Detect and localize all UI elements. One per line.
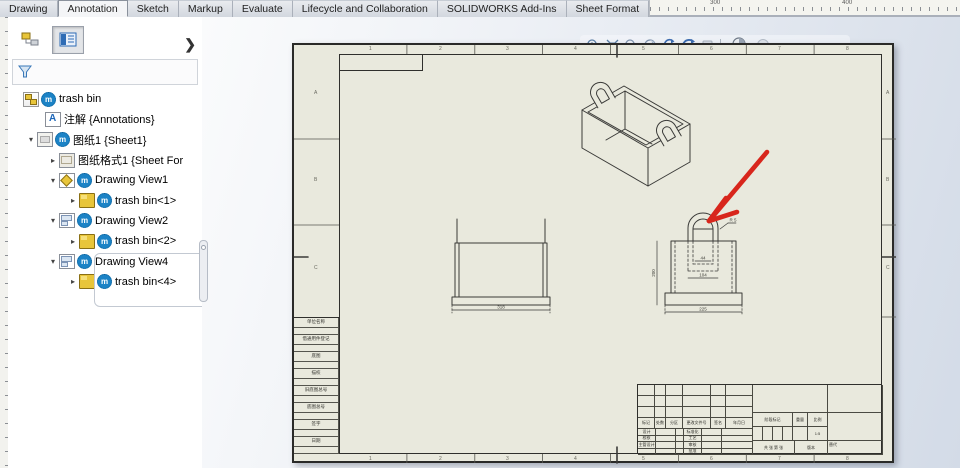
part-icon: [79, 234, 95, 249]
drawing-document-icon: [23, 92, 39, 107]
command-manager-tabbar: Drawing Annotation Sketch Markup Evaluat…: [0, 0, 960, 18]
expander-closed-icon[interactable]: ▸: [68, 196, 78, 205]
tab-drawing[interactable]: Drawing: [0, 0, 58, 17]
gear-overlay-icon: m: [97, 234, 112, 249]
gear-overlay-icon: m: [55, 132, 70, 147]
expander-open-icon[interactable]: ▾: [48, 216, 58, 225]
part-icon: [79, 193, 95, 208]
ruler-label-300: 300: [710, 0, 720, 6]
tree-item-sheet1[interactable]: ▾ m 图纸1 {Sheet1}: [8, 130, 202, 150]
tree-item-label: 图纸1 {Sheet1}: [73, 132, 146, 148]
tree-item-label: trash bin<2>: [115, 235, 176, 247]
dim-side-height: 200: [651, 269, 656, 277]
tree-filter-row[interactable]: [12, 59, 198, 85]
tab-solidworks-add-ins[interactable]: SOLIDWORKS Add-Ins: [438, 0, 567, 17]
panel-tab-strip: ❯: [8, 25, 202, 55]
tree-item-root[interactable]: m trash bin: [8, 89, 202, 109]
expander-closed-icon[interactable]: ▸: [48, 156, 58, 165]
dim-side-width: 225: [699, 307, 707, 312]
tab-markup[interactable]: Markup: [179, 0, 233, 17]
tab-annotation[interactable]: Annotation: [58, 0, 128, 17]
gear-overlay-icon: m: [77, 254, 92, 269]
gear-overlay-icon: m: [97, 193, 112, 208]
filter-funnel-icon: [17, 64, 33, 80]
panel-splitter-grip[interactable]: [199, 240, 208, 302]
tree-hover-outline: [94, 253, 213, 307]
tree-item-drawing-view2[interactable]: ▾ m Drawing View2: [8, 211, 202, 231]
side-view: [657, 213, 742, 314]
feature-tree-tab[interactable]: [14, 26, 46, 54]
projected-view-icon: [59, 213, 75, 228]
dim-front-width: 318: [497, 305, 505, 310]
display-pane-tab[interactable]: [52, 26, 84, 54]
design-tree-icon: [21, 32, 39, 48]
expander-closed-icon[interactable]: ▸: [68, 237, 78, 246]
tab-evaluate[interactable]: Evaluate: [233, 0, 293, 17]
tree-item-trash-bin-2[interactable]: ▸ m trash bin<2>: [8, 231, 202, 251]
drawing-sheet[interactable]: 1 2 3 4 5 6 7 8 1 2 3 4 5 6 7 8 A B C A …: [292, 43, 894, 463]
gear-overlay-icon: m: [77, 173, 92, 188]
panel-collapse-arrow[interactable]: ❯: [184, 37, 196, 51]
tree-item-label: trash bin<1>: [115, 195, 176, 207]
tree-item-label: trash bin: [59, 93, 101, 105]
dim-radius: R 5: [729, 218, 737, 223]
sheet-icon: [37, 132, 53, 147]
ruler-label-400: 400: [842, 0, 852, 6]
tree-item-label: Drawing View2: [95, 215, 168, 227]
dim-handle-inner: 44: [700, 256, 706, 261]
tree-item-sheet-format1[interactable]: ▸ 图纸格式1 {Sheet For: [8, 150, 202, 170]
sheet-format-icon: [59, 153, 75, 168]
expander-open-icon[interactable]: ▾: [26, 135, 36, 144]
tree-item-label: 图纸格式1 {Sheet For: [78, 152, 183, 168]
front-view: [452, 219, 550, 313]
feature-manager-panel: ❯ m trash bin 注解 {Annotations} ▾ m 图纸1 {…: [8, 17, 203, 468]
annotations-icon: [45, 112, 61, 127]
dim-handle-width: 104: [699, 273, 707, 278]
tree-item-drawing-view1[interactable]: ▾ m Drawing View1: [8, 170, 202, 190]
gear-overlay-icon: m: [41, 92, 56, 107]
graphics-area[interactable]: ▾ ▾ 1 2 3 4 5 6 7 8 1 2 3 4 5: [202, 17, 960, 468]
tab-lifecycle-and-collaboration[interactable]: Lifecycle and Collaboration: [293, 0, 438, 17]
expander-closed-icon[interactable]: ▸: [68, 277, 78, 286]
expander-open-icon[interactable]: ▾: [48, 176, 58, 185]
drawing-views-layer: 318 225 200 44 104 R 5: [294, 45, 896, 465]
iso-view-icon: [59, 173, 75, 188]
tab-sheet-format[interactable]: Sheet Format: [567, 0, 650, 17]
gear-overlay-icon: m: [77, 213, 92, 228]
tree-item-annotations[interactable]: 注解 {Annotations}: [8, 109, 202, 129]
horizontal-ruler: 300 400: [649, 0, 960, 17]
list-pane-icon: [59, 32, 77, 48]
projected-view-icon: [59, 254, 75, 269]
part-icon: [79, 274, 95, 289]
solidworks-window: Drawing Annotation Sketch Markup Evaluat…: [0, 0, 960, 468]
iso-view: [582, 79, 690, 186]
tree-item-trash-bin-1[interactable]: ▸ m trash bin<1>: [8, 190, 202, 210]
tree-item-label: 注解 {Annotations}: [64, 111, 155, 127]
expander-open-icon[interactable]: ▾: [48, 257, 58, 266]
red-annotation-arrow: [709, 152, 767, 221]
tab-sketch[interactable]: Sketch: [128, 0, 179, 17]
tree-item-label: Drawing View1: [95, 174, 168, 186]
